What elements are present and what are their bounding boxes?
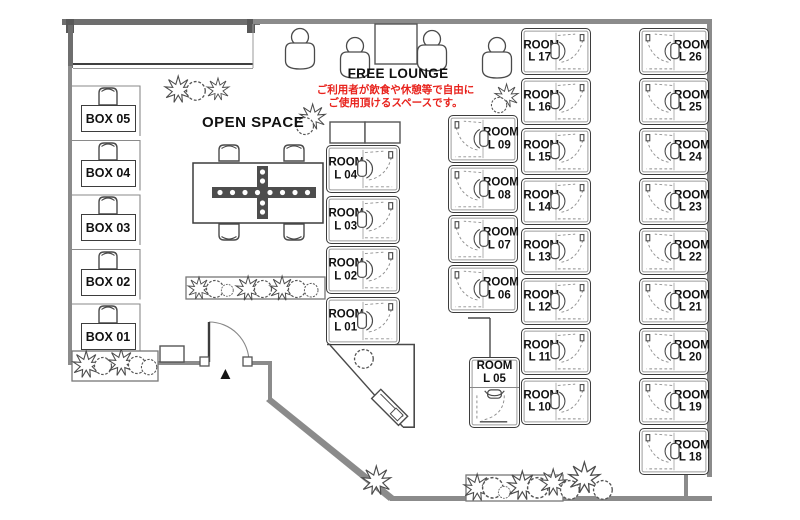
room-cell: ROOML 11 bbox=[521, 328, 591, 375]
room-cell: ROOML 03 bbox=[326, 196, 400, 244]
lockers bbox=[330, 122, 400, 143]
door-arc-icon bbox=[329, 300, 397, 342]
box-seat-unit: BOX 01 bbox=[79, 303, 137, 350]
room-cell: ROOML 10 bbox=[521, 378, 591, 425]
room-cell: ROOML 05 bbox=[469, 357, 520, 428]
room-cell: ROOML 09 bbox=[448, 115, 518, 163]
room-cell: ROOML 06 bbox=[448, 265, 518, 313]
room-cell: ROOML 15 bbox=[521, 128, 591, 175]
door-arc-icon bbox=[451, 168, 515, 210]
room-label-prefix: ROOM bbox=[470, 360, 519, 373]
door-arc-icon bbox=[524, 31, 588, 72]
chair-icon bbox=[95, 249, 121, 269]
door-arc-icon bbox=[642, 81, 706, 122]
door-arc-icon bbox=[524, 131, 588, 172]
box-desk-label: BOX 01 bbox=[81, 323, 136, 350]
door-arc-icon bbox=[329, 148, 397, 190]
room-cell: ROOML 22 bbox=[639, 228, 709, 275]
reception-desk bbox=[372, 389, 408, 425]
room-cell: ROOML 24 bbox=[639, 128, 709, 175]
door-arc-icon bbox=[642, 181, 706, 222]
entrance-door-icon bbox=[200, 322, 252, 366]
chair-icon bbox=[95, 194, 121, 214]
chair-icon bbox=[95, 140, 121, 160]
room-cell: ROOML 20 bbox=[639, 328, 709, 375]
door-arc-icon bbox=[524, 381, 588, 422]
room-cell: ROOML 26 bbox=[639, 28, 709, 75]
door-arc-icon bbox=[524, 281, 588, 322]
door-arc-icon bbox=[472, 388, 517, 425]
free-lounge-note-line2: ご使用頂けるスペースです。 bbox=[293, 95, 498, 110]
door-arc-icon bbox=[524, 231, 588, 272]
door-arc-icon bbox=[451, 118, 515, 160]
door-arc-icon bbox=[451, 268, 515, 310]
box-seat-unit: BOX 05 bbox=[79, 85, 137, 132]
room-cell: ROOML 23 bbox=[639, 178, 709, 225]
room-cell: ROOML 08 bbox=[448, 165, 518, 213]
box-desk-label: BOX 03 bbox=[81, 214, 136, 241]
box-desk-label: BOX 02 bbox=[81, 269, 136, 296]
room-label-number: L 05 bbox=[470, 373, 519, 386]
lounge-table bbox=[375, 24, 417, 64]
room-cell: ROOML 01 bbox=[326, 297, 400, 345]
door-arc-icon bbox=[642, 431, 706, 472]
room-label: ROOML 05 bbox=[470, 360, 519, 388]
door-arc-icon bbox=[642, 31, 706, 72]
door-arc-icon bbox=[642, 231, 706, 272]
room-cell: ROOML 04 bbox=[326, 145, 400, 193]
room-cell: ROOML 02 bbox=[326, 246, 400, 294]
room-cell: ROOML 21 bbox=[639, 278, 709, 325]
box-seat-unit: BOX 03 bbox=[79, 194, 137, 241]
room-cell: ROOML 16 bbox=[521, 78, 591, 125]
box-seat-unit: BOX 02 bbox=[79, 249, 137, 296]
door-arc-icon bbox=[451, 218, 515, 260]
door-arc-icon bbox=[642, 381, 706, 422]
floor-plan: FREE LOUNGE ご利用者が飲食や休憩等で自由に ご使用頂けるスペースです… bbox=[0, 0, 800, 520]
room-cell: ROOML 13 bbox=[521, 228, 591, 275]
door-arc-icon bbox=[642, 131, 706, 172]
room-cell: ROOML 18 bbox=[639, 428, 709, 475]
door-arc-icon bbox=[524, 81, 588, 122]
door-arc-icon bbox=[329, 249, 397, 291]
door-arc-icon bbox=[642, 281, 706, 322]
room-cell: ROOML 14 bbox=[521, 178, 591, 225]
room-cell: ROOML 12 bbox=[521, 278, 591, 325]
wall-l05-connector bbox=[468, 318, 490, 358]
entrance-icon: ▲ bbox=[217, 364, 234, 384]
box-seat-unit: BOX 04 bbox=[79, 140, 137, 187]
door-arc-icon bbox=[642, 331, 706, 372]
door-arc-icon bbox=[524, 331, 588, 372]
cabinet bbox=[160, 346, 184, 362]
door-arc-icon bbox=[329, 199, 397, 241]
room-cell: ROOML 19 bbox=[639, 378, 709, 425]
chair-icon bbox=[95, 303, 121, 323]
open-space-label: OPEN SPACE bbox=[202, 114, 304, 131]
room-cell: ROOML 25 bbox=[639, 78, 709, 125]
room-cell: ROOML 17 bbox=[521, 28, 591, 75]
box-desk-label: BOX 05 bbox=[81, 105, 136, 132]
free-lounge-label: FREE LOUNGE bbox=[338, 66, 458, 81]
box-desk-label: BOX 04 bbox=[81, 160, 136, 187]
chair-icon bbox=[95, 85, 121, 105]
room-cell: ROOML 07 bbox=[448, 215, 518, 263]
open-space-table bbox=[193, 163, 323, 223]
door-arc-icon bbox=[524, 181, 588, 222]
